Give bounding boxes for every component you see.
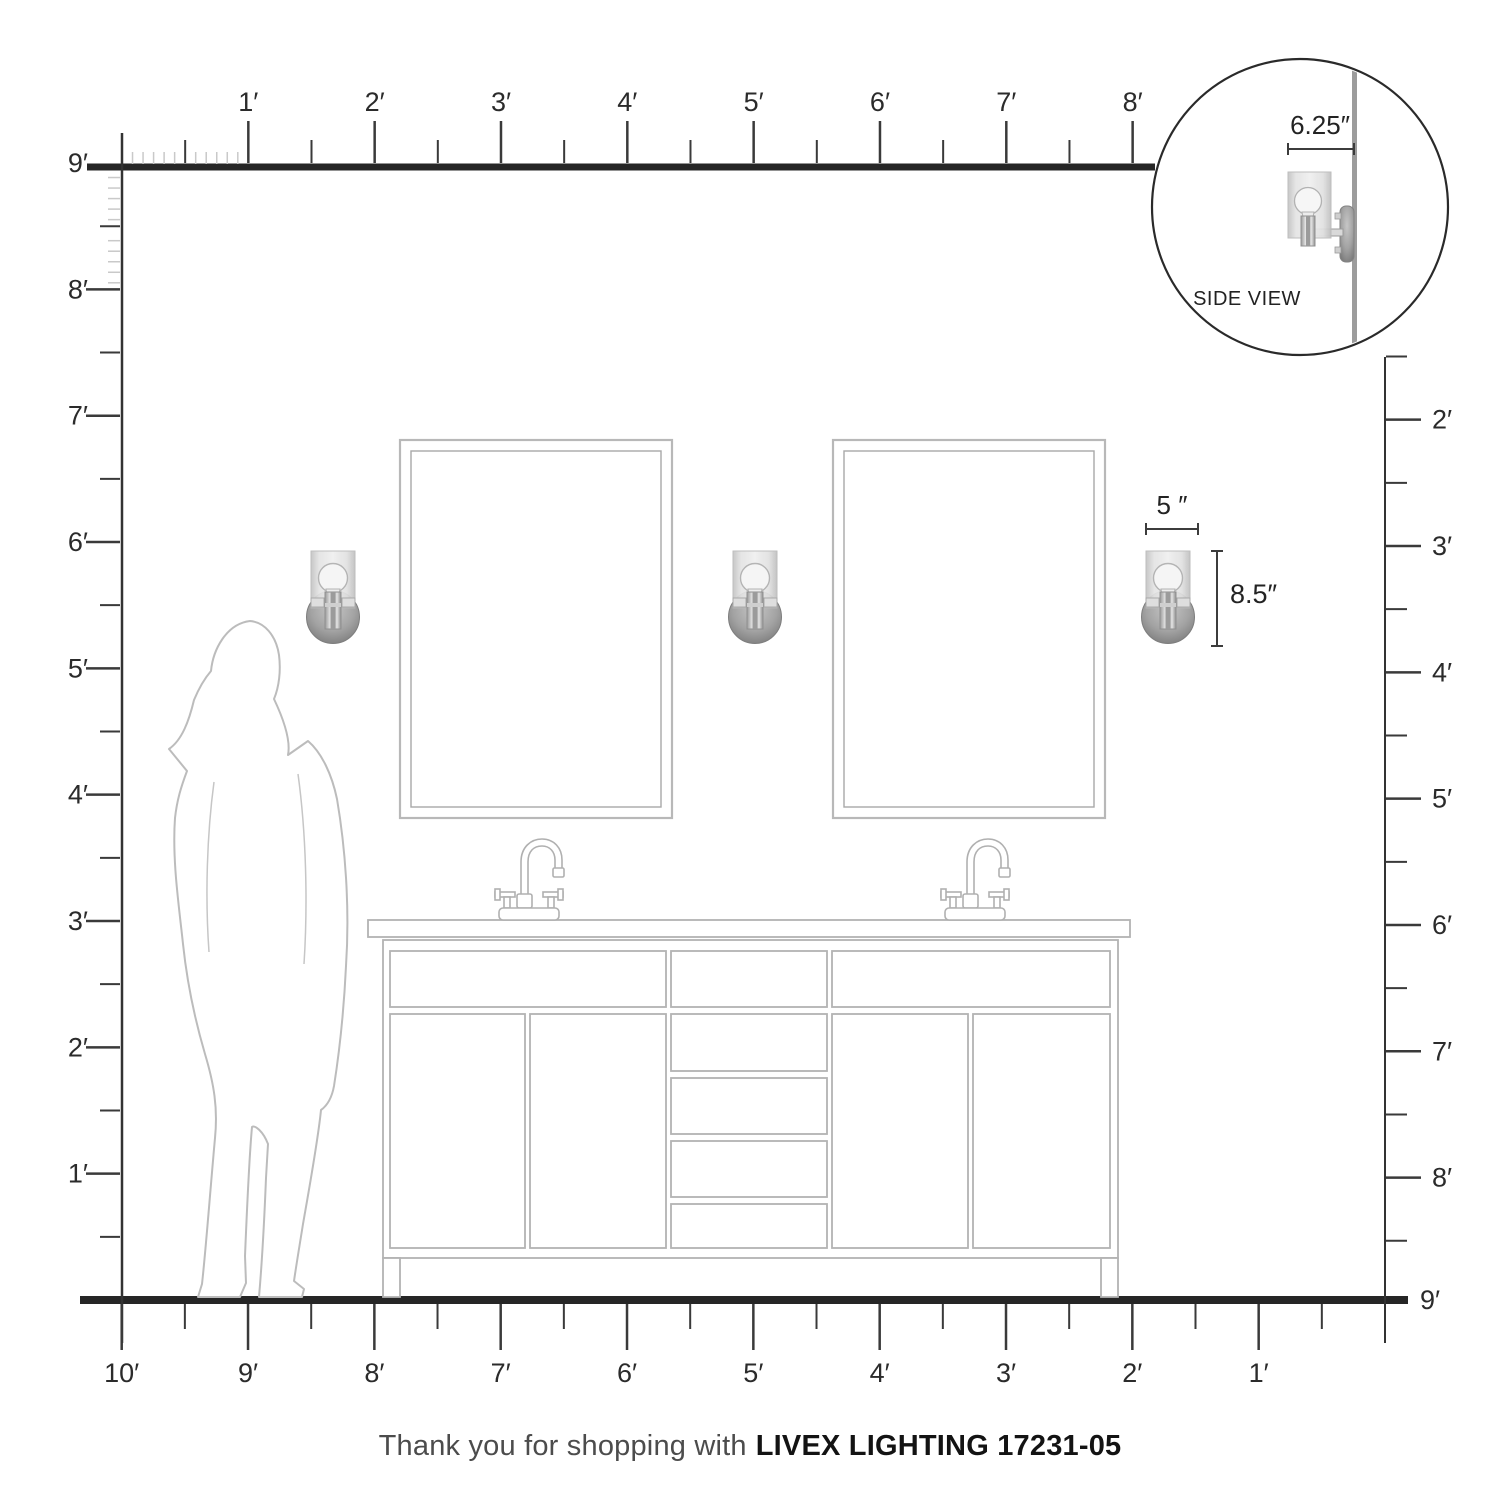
footer-note: Thank you for shopping withLIVEX LIGHTIN… — [0, 1430, 1500, 1463]
ruler-label: 3′ — [1432, 531, 1452, 561]
mirror-right — [833, 440, 1105, 818]
ruler-label: 2′ — [68, 1032, 88, 1062]
ruler-label: 5′ — [1432, 784, 1452, 814]
ruler-label: 5′ — [743, 1358, 763, 1388]
ruler-label: 7′ — [68, 401, 88, 431]
drawer-top-right — [832, 951, 1110, 1007]
ruler-label: 2′ — [1432, 405, 1452, 435]
drawer-top-left — [390, 951, 666, 1007]
ruler-label: 6′ — [617, 1358, 637, 1388]
door-right-1 — [832, 1014, 968, 1248]
door-left-1 — [390, 1014, 525, 1248]
diagram-stage: 1′2′3′4′5′6′7′8′ 9′8′7′6′5′4′3′2′1′ 2′3′… — [0, 0, 1500, 1500]
footer-product-id: LIVEX LIGHTING 17231-05 — [756, 1430, 1122, 1462]
ruler-label: 7′ — [491, 1358, 511, 1388]
ruler-label: 9′ — [1420, 1285, 1440, 1315]
scale-figure-woman — [169, 621, 347, 1297]
cabinet-leg-left — [383, 1258, 400, 1297]
ruler-label: 7′ — [996, 87, 1016, 117]
ruler-label: 4′ — [1432, 657, 1452, 687]
bottom-ruler: 10′9′8′7′6′5′4′3′2′1′ — [104, 1304, 1322, 1388]
ruler-label: 1′ — [238, 87, 258, 117]
top-ruler: 1′2′3′4′5′6′7′8′ — [133, 87, 1143, 164]
ruler-label: 6′ — [68, 527, 88, 557]
ruler-label: 9′ — [68, 148, 88, 178]
faucet-right — [941, 839, 1010, 920]
ruler-label: 4′ — [68, 780, 88, 810]
ruler-label: 6′ — [1432, 910, 1452, 940]
right-ruler: 2′3′4′5′6′7′8′9′ — [1386, 356, 1452, 1315]
vanity-cabinet — [368, 920, 1130, 1297]
mirror-left — [400, 440, 672, 818]
left-ruler: 9′8′7′6′5′4′3′2′1′ — [68, 148, 120, 1237]
width-dimension-label: 5 ″ — [1157, 490, 1188, 520]
faucet-left — [495, 839, 564, 920]
ruler-label: 8′ — [68, 274, 88, 304]
drawer-center-3 — [671, 1141, 827, 1197]
door-right-2 — [973, 1014, 1110, 1248]
height-dimension-label: 8.5″ — [1230, 579, 1278, 609]
ruler-label: 6′ — [870, 87, 890, 117]
ruler-label: 8′ — [1432, 1163, 1452, 1193]
drawer-top-center — [671, 951, 827, 1007]
ruler-label: 1′ — [68, 1159, 88, 1189]
ruler-label: 3′ — [68, 906, 88, 936]
ruler-label: 2′ — [365, 87, 385, 117]
ruler-label: 2′ — [1122, 1358, 1142, 1388]
sconce-center — [729, 551, 782, 644]
drawer-center-1 — [671, 1014, 827, 1071]
sconce-right — [1142, 551, 1195, 644]
door-left-2 — [530, 1014, 666, 1248]
height-dimension — [1211, 551, 1223, 646]
inset-wall-line — [1352, 59, 1357, 356]
side-view-inset: 6.25″ SIDE VIEW — [1152, 59, 1448, 356]
ruler-label: 10′ — [104, 1358, 139, 1388]
ruler-label: 8′ — [1123, 87, 1143, 117]
footer-thankyou-text: Thank you for shopping with — [379, 1430, 747, 1462]
ruler-label: 3′ — [491, 87, 511, 117]
ruler-label: 7′ — [1432, 1036, 1452, 1066]
side-view-label: SIDE VIEW — [1193, 288, 1301, 310]
drawer-center-2 — [671, 1078, 827, 1134]
ruler-label: 9′ — [238, 1358, 258, 1388]
ruler-label: 4′ — [870, 1358, 890, 1388]
ruler-label: 5′ — [744, 87, 764, 117]
width-dimension — [1146, 523, 1198, 535]
ruler-label: 3′ — [996, 1358, 1016, 1388]
sconce-left — [307, 551, 360, 644]
ruler-label: 5′ — [68, 653, 88, 683]
mirror-left-frame — [400, 440, 672, 818]
ruler-label: 1′ — [1249, 1358, 1269, 1388]
woman-outline — [169, 621, 347, 1297]
depth-dimension-label: 6.25″ — [1290, 110, 1350, 140]
drawer-center-4 — [671, 1204, 827, 1248]
ruler-label: 8′ — [364, 1358, 384, 1388]
scale-diagram: 1′2′3′4′5′6′7′8′ 9′8′7′6′5′4′3′2′1′ 2′3′… — [0, 0, 1500, 1500]
cabinet-leg-right — [1101, 1258, 1118, 1297]
countertop — [368, 920, 1130, 937]
ruler-label: 4′ — [617, 87, 637, 117]
mirror-right-frame — [833, 440, 1105, 818]
